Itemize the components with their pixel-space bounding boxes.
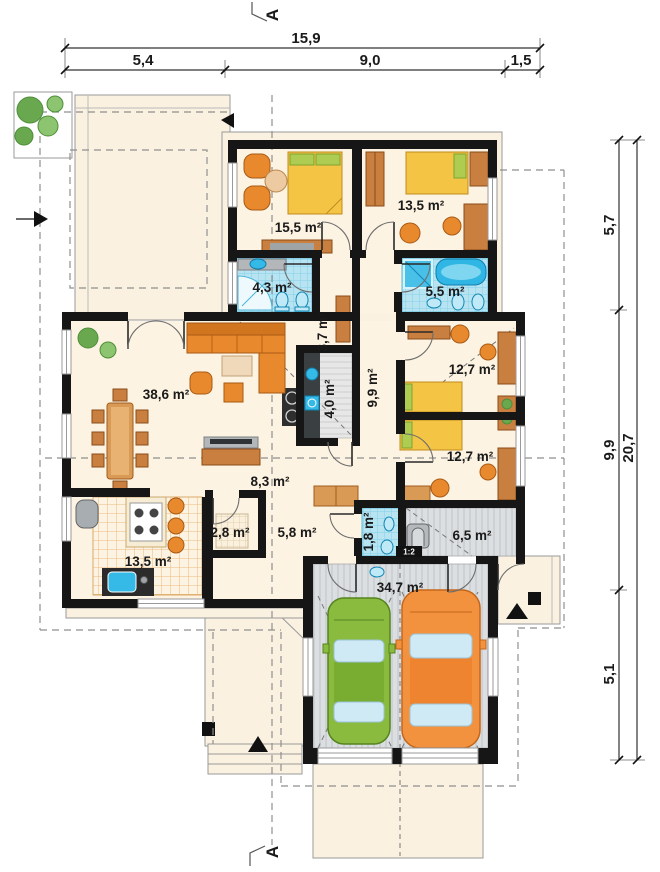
dim-top-seg-1: 5,4 <box>133 52 155 69</box>
boiler-unit <box>407 524 429 548</box>
room-label-bedroom-4: 12,7 m² <box>447 449 494 464</box>
car-orange <box>396 590 486 748</box>
room-label-garage: 34,7 m² <box>377 580 424 595</box>
room-label-hallway: 9,9 m² <box>365 368 380 408</box>
section-marker-bottom: A <box>250 846 282 866</box>
dim-top-total: 15,9 <box>291 30 320 47</box>
arrow-west-icon <box>34 211 48 227</box>
dimension-top: 15,9 5,4 9,0 1,5 <box>61 30 544 78</box>
dim-right-total: 20,7 <box>620 433 637 462</box>
dimension-right: 5,7 9,9 5,1 20,7 <box>601 136 645 764</box>
kitchen-south-slab <box>66 608 310 618</box>
level-badge-label: 1:2 <box>403 548 415 557</box>
room-label-hall: 8,3 m² <box>250 474 290 489</box>
car-green <box>323 598 395 744</box>
dim-right-seg-2: 9,9 <box>601 440 618 461</box>
floor-plan-canvas: 1:2 15,5 m² 13,5 m² 4,3 m² 5,5 m² 3,7 m²… <box>0 0 660 872</box>
driveway <box>313 764 483 858</box>
room-label-corridor: 5,8 m² <box>277 525 317 540</box>
room-label-wc: 1,8 m² <box>361 512 376 552</box>
room-label-kitchen: 13,5 m² <box>125 554 172 569</box>
room-label-pantry: 2,8 m² <box>210 525 250 540</box>
porch-east <box>498 556 560 624</box>
floor-plan-drawing: 1:2 15,5 m² 13,5 m² 4,3 m² 5,5 m² 3,7 m²… <box>0 0 660 872</box>
room-label-bathroom-2: 5,5 m² <box>425 284 465 299</box>
dim-right-seg-1: 5,7 <box>601 215 618 236</box>
section-marker-top-label: A <box>263 9 282 21</box>
dim-right-seg-3: 5,1 <box>601 664 618 685</box>
room-label-bedroom-2: 13,5 m² <box>398 198 445 213</box>
dim-top-seg-2: 9,0 <box>360 52 381 69</box>
level-badge: 1:2 <box>396 546 422 557</box>
room-label-living-room: 38,6 m² <box>143 387 190 402</box>
room-label-utility: 4,0 m² <box>322 379 337 419</box>
garage-sink <box>370 567 384 577</box>
room-label-boiler-room: 6,5 m² <box>452 528 492 543</box>
room-label-wardrobe: 3,7 m² <box>315 312 330 352</box>
room-label-bathroom-1: 4,3 m² <box>252 280 292 295</box>
dim-top-seg-3: 1,5 <box>511 52 532 69</box>
section-marker-top: A <box>252 2 282 21</box>
room-label-bedroom-3: 12,7 m² <box>449 362 496 377</box>
room-label-bedroom-1: 15,5 m² <box>275 220 322 235</box>
section-marker-bottom-label: A <box>263 846 282 858</box>
